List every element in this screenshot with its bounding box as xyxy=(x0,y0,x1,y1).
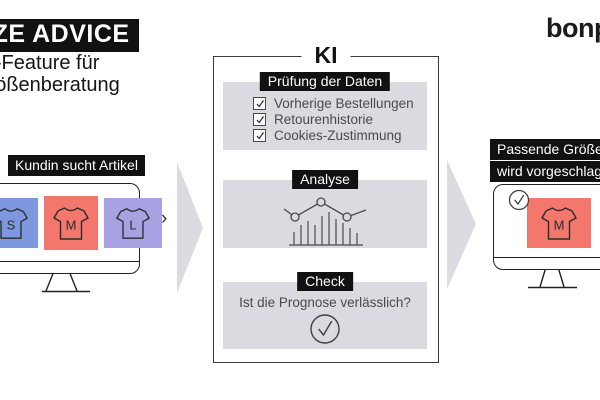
monitor-bezel-line xyxy=(494,257,600,258)
checklist-item-label: Cookies-Zustimmung xyxy=(274,128,402,143)
checklist-item: Cookies-Zustimmung xyxy=(253,128,427,143)
size-letter: M xyxy=(44,218,98,233)
checked-checkbox-icon xyxy=(253,97,266,110)
page-subtitle-line1: KI-Feature für xyxy=(0,53,99,74)
product-tile-size-l: L xyxy=(104,198,162,248)
brand-logo: bonprix xyxy=(546,13,600,44)
product-tile-size-m: M xyxy=(44,196,98,250)
ki-pipeline-box: KI Prüfung der Daten Vorherige Bestellun… xyxy=(213,56,439,363)
ki-box-title: KI xyxy=(302,41,351,69)
checked-checkbox-icon xyxy=(253,129,266,142)
check-question: Ist die Prognose verlässlich? xyxy=(223,295,427,310)
flow-arrow-right-icon xyxy=(177,162,205,294)
checklist-item-label: Retourenhistorie xyxy=(274,112,373,127)
monitor-bezel-line xyxy=(0,261,139,262)
data-checklist: Vorherige Bestellungen Retourenhistorie … xyxy=(223,82,427,143)
approved-check-circle-icon xyxy=(507,188,531,212)
step-label-result-line2: wird vorgeschlagen xyxy=(490,161,600,182)
section-analysis: Analyse xyxy=(223,180,427,248)
section-data-check-label: Prüfung der Daten xyxy=(260,72,390,91)
section-analysis-label: Analyse xyxy=(292,170,358,189)
section-check: Check Ist die Prognose verlässlich? xyxy=(223,282,427,349)
checked-checkbox-icon xyxy=(253,113,266,126)
step-label-result-line1: Passende Größe xyxy=(490,139,600,160)
checklist-item: Vorherige Bestellungen xyxy=(253,96,427,111)
product-tile-size-s: S xyxy=(0,198,38,248)
checklist-item: Retourenhistorie xyxy=(253,112,427,127)
flow-arrow-right-icon xyxy=(447,160,477,290)
section-check-label: Check xyxy=(297,272,353,291)
size-letter: L xyxy=(104,218,162,233)
monitor-stand-graphic xyxy=(522,267,580,290)
suggested-size-tile: M xyxy=(527,198,591,248)
size-letter: S xyxy=(0,218,38,233)
checklist-item-label: Vorherige Bestellungen xyxy=(274,96,414,111)
step-label-customer-search: Kundin sucht Artikel xyxy=(8,155,145,176)
page-title: SIZE ADVICE xyxy=(0,19,139,52)
check-circle-icon xyxy=(308,312,342,346)
monitor-stand-graphic xyxy=(40,271,92,294)
page-subtitle-line2: Größenberatung xyxy=(0,75,120,96)
section-data-check: Prüfung der Daten Vorherige Bestellungen… xyxy=(223,82,427,150)
carousel-next-icon: › xyxy=(161,209,167,228)
size-letter: M xyxy=(527,218,591,233)
analysis-chart-icon xyxy=(281,195,369,247)
